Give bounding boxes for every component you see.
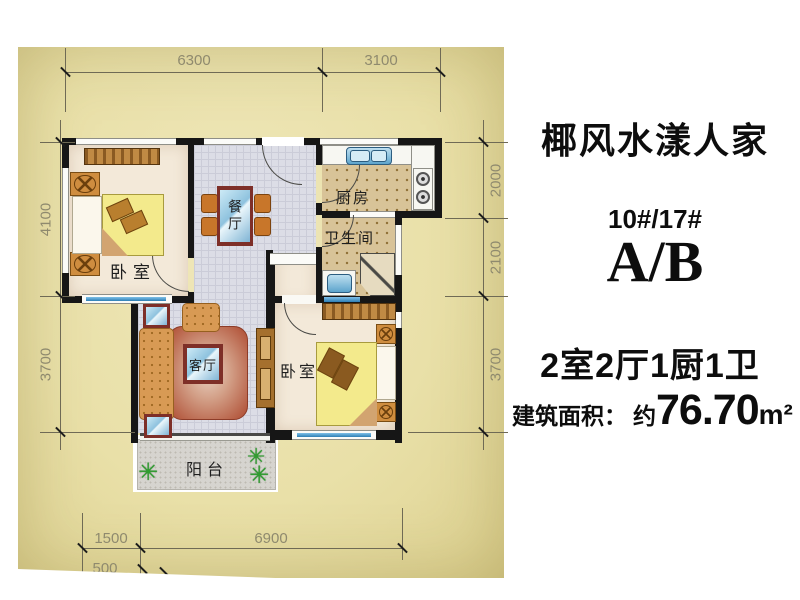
dim-label-right-2: 2100 — [488, 228, 505, 288]
kitchen-sink-basin-right — [371, 150, 387, 162]
kitchen-label: 厨房 — [336, 187, 370, 208]
bathroom-label: 卫生间 — [324, 227, 375, 248]
plant-icon: ✳ — [249, 464, 269, 488]
dim-line-bottom — [82, 548, 402, 549]
wallband-top-bedroom1 — [76, 138, 176, 145]
armchair — [182, 303, 220, 332]
ext-line — [40, 296, 75, 297]
dim-label-left-1: 4100 — [38, 190, 55, 250]
dim-label-left-2: 3700 — [38, 335, 55, 395]
ext-line — [65, 48, 66, 112]
wall-living-left — [131, 296, 138, 443]
ext-line — [40, 432, 135, 433]
dining-table: 餐厅 — [220, 190, 250, 242]
bedroom2-threshold — [270, 253, 316, 265]
bedroom2-nightstand-top — [376, 324, 396, 344]
dining-room-label: 餐厅 — [225, 199, 245, 233]
living-room-label: 客厅 — [189, 355, 217, 374]
bedroom1-window — [86, 297, 166, 301]
dining-chair-3 — [254, 194, 271, 213]
tv-cabinet-shelf-1 — [260, 336, 271, 360]
bedroom1-nightstand-bottom — [70, 252, 100, 276]
stove-burner-2 — [416, 190, 430, 204]
hall-floor — [194, 257, 268, 303]
dim-label-bottom-1: 1500 — [71, 530, 151, 547]
bedroom2-wardrobe — [322, 303, 396, 320]
dim-line-left — [60, 120, 61, 450]
bathroom-high-window — [324, 297, 360, 302]
tv-cabinet-shelf-2 — [260, 368, 271, 400]
area-value: 76.70 — [656, 386, 759, 435]
bedroom1-label: 卧室 — [110, 258, 156, 283]
bedroom2-bed-headboard — [376, 346, 396, 400]
wall-step — [395, 211, 442, 218]
dining-chair-4 — [254, 217, 271, 236]
area-unit: m² — [759, 399, 793, 431]
wall-kitchen-right — [435, 138, 442, 218]
side-table-top — [146, 307, 167, 325]
sofa — [139, 328, 174, 420]
wallband-bathroom-right — [395, 225, 402, 275]
layout-summary: 2室2厅1厨1卫 — [520, 338, 780, 387]
ext-line — [322, 48, 323, 112]
dim-label-top-2: 3100 — [341, 52, 421, 69]
bedroom1-bed-headboard — [72, 196, 102, 254]
bedroom1-nightstand-top — [70, 172, 100, 196]
ext-line — [408, 432, 508, 433]
plant-icon: ✳ — [138, 461, 158, 485]
wallband-bedroom2-right — [395, 312, 402, 328]
dim-label-bottom-2: 6900 — [231, 530, 311, 547]
dim-label-right-3: 3700 — [488, 335, 505, 395]
plan-title: 椰风水漾人家 — [530, 112, 780, 164]
bedroom1-wardrobe — [84, 148, 160, 165]
wallband-bathroom-top — [350, 211, 395, 218]
ext-line — [445, 142, 508, 143]
dining-chair-1 — [201, 194, 218, 213]
balcony-label: 阳台 — [186, 456, 228, 480]
wallband-top-kitchen — [320, 138, 398, 145]
ext-line — [445, 218, 508, 219]
dim-line-right — [483, 120, 484, 450]
wall-bedroom1-dining — [188, 138, 194, 258]
bedroom2-nightstand-bottom — [376, 402, 396, 422]
area-row: 建筑面积： 约 76.70 m² — [512, 386, 794, 435]
bathroom-sink — [327, 274, 352, 293]
ext-line — [40, 142, 75, 143]
kitchen-sink-basin-left — [350, 150, 370, 162]
dim-line-top — [65, 72, 441, 73]
shower — [360, 253, 395, 296]
area-label: 建筑面积： — [512, 397, 627, 431]
floorplan-page: 餐厅 客厅 ✳ ✳ ✳ 卧室 厨房 卫生间 卧室 阳台 6300 3100 41 — [0, 0, 800, 600]
stove-burner-1 — [416, 172, 430, 186]
dining-chair-2 — [201, 217, 218, 236]
ext-line — [402, 508, 403, 560]
wallband-left-bedroom1 — [62, 168, 69, 273]
bedroom2-window — [297, 433, 371, 437]
dim-label-top-1: 6300 — [154, 52, 234, 69]
ext-line — [440, 48, 441, 112]
unit-label: A/B — [560, 228, 750, 295]
wall-bedroom1-dining-stub — [188, 292, 194, 303]
ext-line — [445, 296, 508, 297]
area-approx: 约 — [633, 397, 656, 431]
dim-label-right-1: 2000 — [488, 151, 505, 211]
side-table-bottom — [147, 417, 169, 435]
coffee-table: 客厅 — [187, 348, 219, 380]
wallband-top-dining — [204, 138, 256, 145]
bedroom2-label: 卧室 — [280, 358, 318, 382]
